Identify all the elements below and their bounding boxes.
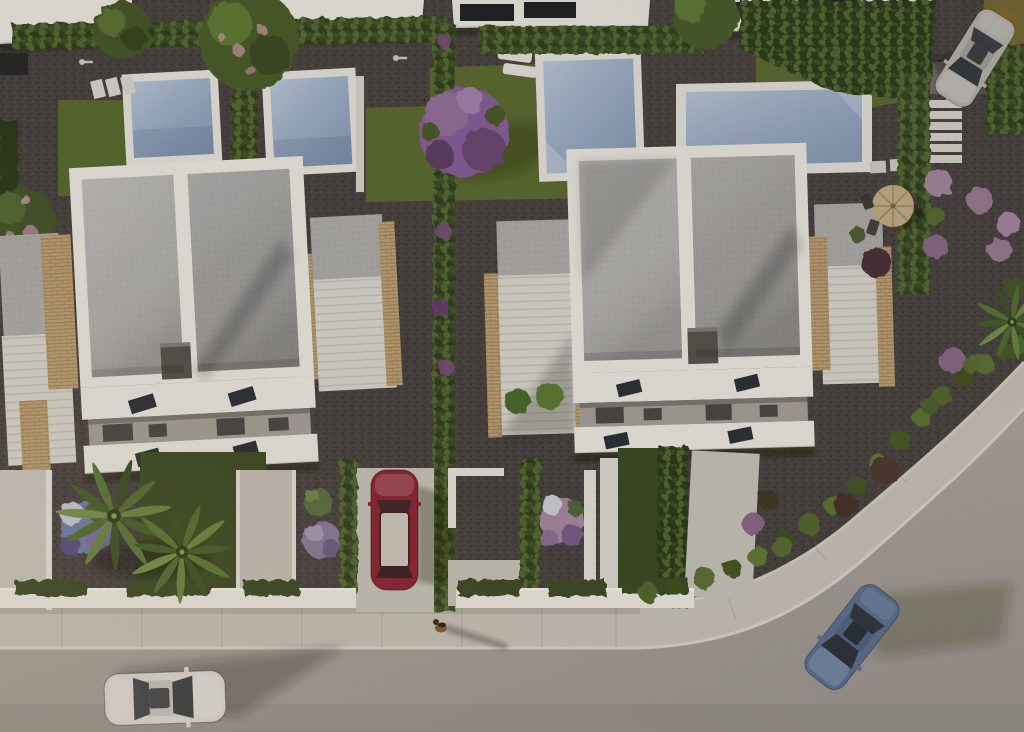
film-grain [0,0,1024,732]
scene-canvas [0,0,1024,732]
aerial-render-image [0,0,1024,732]
